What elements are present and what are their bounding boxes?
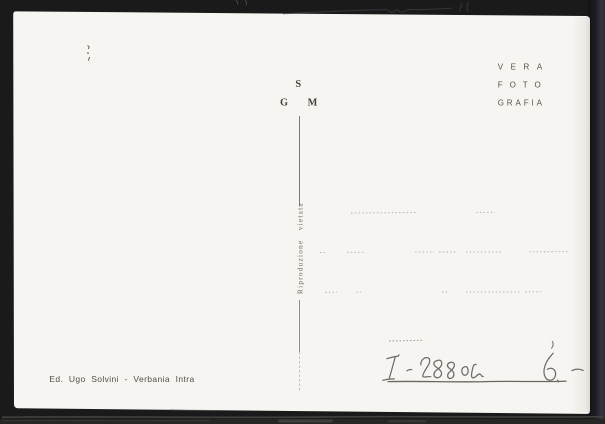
svg-text:FOTO: FOTO	[498, 81, 548, 90]
svg-text:M: M	[308, 97, 318, 108]
svg-text:VERA: VERA	[498, 63, 550, 72]
svg-text:G: G	[280, 98, 288, 109]
svg-text:Ed. Ugo Solvini - Verbania Int: Ed. Ugo Solvini - Verbania Intra	[49, 374, 194, 384]
svg-text:GRAFIA: GRAFIA	[498, 99, 545, 108]
svg-text:Riproduzione vietata: Riproduzione vietata	[297, 202, 305, 294]
svg-text:S: S	[295, 79, 301, 90]
